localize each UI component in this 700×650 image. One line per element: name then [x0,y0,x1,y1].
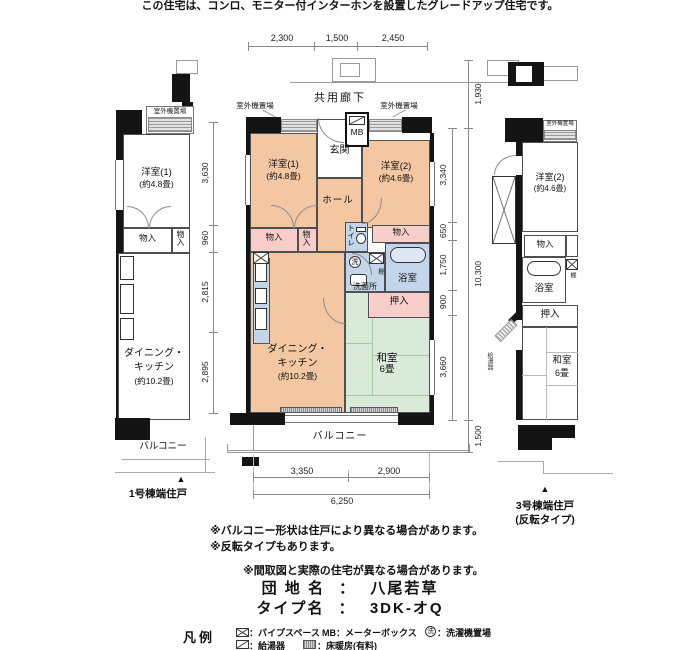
dim-line [253,477,430,478]
room-label-genkan: 玄関 [317,145,362,157]
kitchen-sink [255,262,267,282]
room-label-yoshitsu2: 洋室(2) [522,172,578,182]
closet-label: 物入 [250,233,298,243]
dim-total-horizontal: 6,250 [300,496,384,506]
legend-title: 凡例 [183,627,215,646]
wall [402,117,432,133]
dim-tick [448,240,457,241]
estate-name-line: 団 地 名 ： 八尾若草 [150,580,550,597]
wall [248,117,281,133]
note-difference: ※間取図と実際の住宅が異なる場合があります。 [243,562,484,578]
unit-marker: ▲ [172,474,190,484]
dim-left-3: 2,815 [200,272,210,312]
dim-tick [253,490,254,499]
dim-corridor: 1,930 [473,74,483,114]
dim-left-1: 3,630 [200,153,210,193]
dim-tick [429,490,430,499]
pipe-space-icon [369,253,384,264]
dim-line [253,494,430,495]
estate-name-sep: ： [339,580,356,597]
closet-label: 物入 [302,230,310,246]
room-size-yoshitsu2: (約4.6畳) [362,174,430,184]
dim-top-2: 1,500 [316,33,358,43]
adjacent-structure-outline [290,82,522,83]
shelf-label: 棚 [376,268,383,275]
balcony-rail [205,437,206,472]
closet-label-oshiire: 押入 [522,310,578,321]
type-name-value: 3DK-オQ [370,600,444,617]
dim-tick [448,290,457,291]
balcony-rail-end [469,444,470,452]
tatami-line [522,375,546,376]
wall [398,413,434,425]
dim-balcony: 1,500 [473,416,483,456]
balcony-wall-block [115,418,150,440]
dim-tick [464,420,473,421]
room-label-dk: ダイニング・ [118,348,190,360]
room-label-washitsu: 和室 [546,356,578,367]
closet-label: 物入 [372,228,430,238]
adjacent-structure-outline [176,60,198,74]
dim-tick [209,225,218,226]
balcony-rail-end [227,444,228,452]
dim-tick [464,452,473,453]
room-label-bathroom: 浴室 [522,284,566,295]
bathtub-icon [390,247,426,263]
adjacent-structure-outline [544,66,578,67]
dim-tick [357,42,358,51]
dim-left-4: 2,895 [200,352,210,392]
dim-right-1: 3,340 [438,155,448,195]
wall [116,110,142,134]
dim-top-1: 2,300 [252,33,312,43]
wall [172,74,190,102]
room-size-yoshitsu1: (約4.8畳) [123,180,190,190]
kitchen-stove [120,284,134,314]
pipe-space-icon [253,252,269,264]
water-heater-icon [349,116,365,125]
room-label-washitsu: 和室 [357,352,417,364]
legend-heating-label: ：床暖房(有料) [317,639,377,650]
outdoor-unit-area [544,130,576,140]
kitchen-sink [120,256,134,280]
dim-tick [464,60,473,61]
closet-label: 物入 [123,234,172,244]
room-label-yoshitsu2: 洋室(2) [362,162,430,173]
dim-tick [427,42,428,51]
shelf-label: 棚 [569,272,575,278]
dim-right-3: 1,750 [438,245,448,285]
balcony-wall-block [518,438,552,450]
balcony-label: バルコニー [128,442,198,453]
balcony-label: バルコニー [270,431,410,443]
mb-label: MB [345,128,369,138]
dim-tick [448,420,457,421]
balcony-rail [543,473,613,474]
pipe-space-icon [492,176,516,244]
room-label-hall: ホール [310,196,366,207]
dim-tick [448,222,457,223]
room-label-yoshitsu1: 洋室(1) [123,168,190,179]
estate-name-value: 八尾若草 [370,580,438,597]
type-name-sep: ： [339,600,356,617]
dim-line [452,128,453,420]
dim-top-3: 2,450 [358,33,428,43]
floor-heating-icon [303,640,316,649]
dim-tick [209,122,218,123]
closet-label-oshiire: 押入 [368,297,430,308]
dim-bottom-1: 3,350 [262,466,342,476]
outdoor-unit-label: 室外機置場 [543,121,577,127]
room-label-dk: キッチン [250,358,345,370]
dim-right-5: 3,660 [438,347,448,387]
note-mirror: ※反転タイプもあります。 [210,538,341,554]
balcony-rail [543,461,544,473]
room-label-yoshitsu1: 洋室(1) [250,160,317,171]
outdoor-unit-area [281,119,317,132]
laundry-symbol: 洗 [349,256,361,268]
dim-tick [253,473,254,482]
dim-line [213,122,214,413]
dim-line [468,60,469,452]
closet-label: 物入 [176,230,184,246]
room-label-toilet: トイレ [347,224,355,247]
dim-right-4: 900 [438,282,448,322]
left-unit-caption: 1号棟端住戸 [108,488,208,500]
right-unit-caption2: (反転タイプ) [495,514,595,526]
corridor-label: 共用廊下 [300,92,380,105]
wall-notch [516,66,532,82]
dim-total-vertical: 10,300 [473,254,483,294]
legend-heater-label: ：給湯器 [249,639,285,650]
wall [505,118,543,142]
note-balcony: ※バルコニー形状は住戸により異なる場合があります。 [210,522,483,538]
toilet-bowl-icon [356,233,366,244]
balcony-rail [115,472,215,473]
door-arc [494,155,516,175]
room-size-yoshitsu1: (約4.8畳) [250,172,317,182]
room-label-bathroom: 浴室 [385,274,430,285]
room-size-yoshitsu2: (約4.6畳) [518,184,582,193]
tatami-line [346,395,429,396]
pipe-space-icon [236,628,249,637]
tatami-line [546,352,578,353]
adjacent-structure-outline [544,80,578,81]
dim-tick [314,42,315,51]
kitchen-unit [120,318,134,340]
right-unit-caption: 3号棟端住戸 [495,500,595,512]
type-name-label: タイプ名 [256,600,324,617]
toilet-icon [356,227,366,232]
balcony-divider [253,425,254,451]
floor-heating-strip [280,407,342,413]
closet-side-box [566,235,578,257]
balcony-rail [122,459,210,460]
room-size-washitsu: 6畳 [357,365,417,376]
dim-tick [464,128,473,129]
dim-tick [209,332,218,333]
dim-tick [448,128,457,129]
water-heater-label: 給湯器 [486,352,492,370]
dim-tick [248,42,249,51]
outdoor-unit-label: 室外機置場 [228,102,282,111]
room-label-dk: キッチン [118,362,190,374]
window [285,415,398,423]
outdoor-unit-area [148,117,192,132]
legend-laundry-label: ：洗濯機置場 [437,626,491,639]
balcony-rail [227,450,470,453]
bathtub-icon [527,261,561,276]
adjacent-structure-outline [340,63,360,77]
legend-pipe-label: ：パイプスペース [249,626,320,639]
laundry-symbol: 洗 [425,626,436,637]
dim-tick [448,315,457,316]
adjacent-structure-outline [577,66,578,81]
dim-left-2: 960 [200,218,210,258]
dim-tick [209,252,218,253]
balcony-wall-block [242,457,259,466]
room-size-dk: (約10.2畳) [118,377,190,387]
estate-name-label: 団 地 名 [262,580,325,597]
room-size-washitsu: 6畳 [546,368,578,378]
room-label-dk: ダイニング・ [250,344,345,356]
unit-marker: ▲ [536,484,554,494]
page-title: この住宅は、コンロ、モニター付インターホンを設置したグレードアップ住宅です。 [0,0,700,13]
wall [230,413,285,425]
dim-bottom-2: 2,900 [350,466,428,476]
type-name-line: タイプ名 ： 3DK-オQ [150,600,550,617]
dim-tick [209,413,218,414]
floor-heating-strip [350,407,398,413]
dim-tick [348,473,349,482]
outdoor-unit-label: 室外機置場 [372,102,426,111]
closet-label: 物入 [524,240,566,250]
dim-line [248,46,428,47]
tatami-line [546,385,578,386]
room-label-washroom: 洗面所 [345,282,385,291]
legend-mb-label: MB：メーターボックス [322,626,417,639]
floor-plan-page: この住宅は、コンロ、モニター付インターホンを設置したグレードアップ住宅です。 2… [0,0,700,650]
outdoor-unit-area [369,119,402,132]
pipe-space-icon [566,259,578,270]
balcony-wall-block [518,425,575,438]
water-heater-icon [236,640,249,649]
kitchen-unit [255,308,267,330]
water-heater-hatch [494,319,517,342]
dim-tick [429,473,430,482]
kitchen-stove [255,288,267,304]
outdoor-unit-label: 室外機置場 [146,108,194,115]
balcony-rail [498,461,543,462]
tatami-line [346,343,372,344]
room-size-dk: (約10.2畳) [250,372,345,382]
